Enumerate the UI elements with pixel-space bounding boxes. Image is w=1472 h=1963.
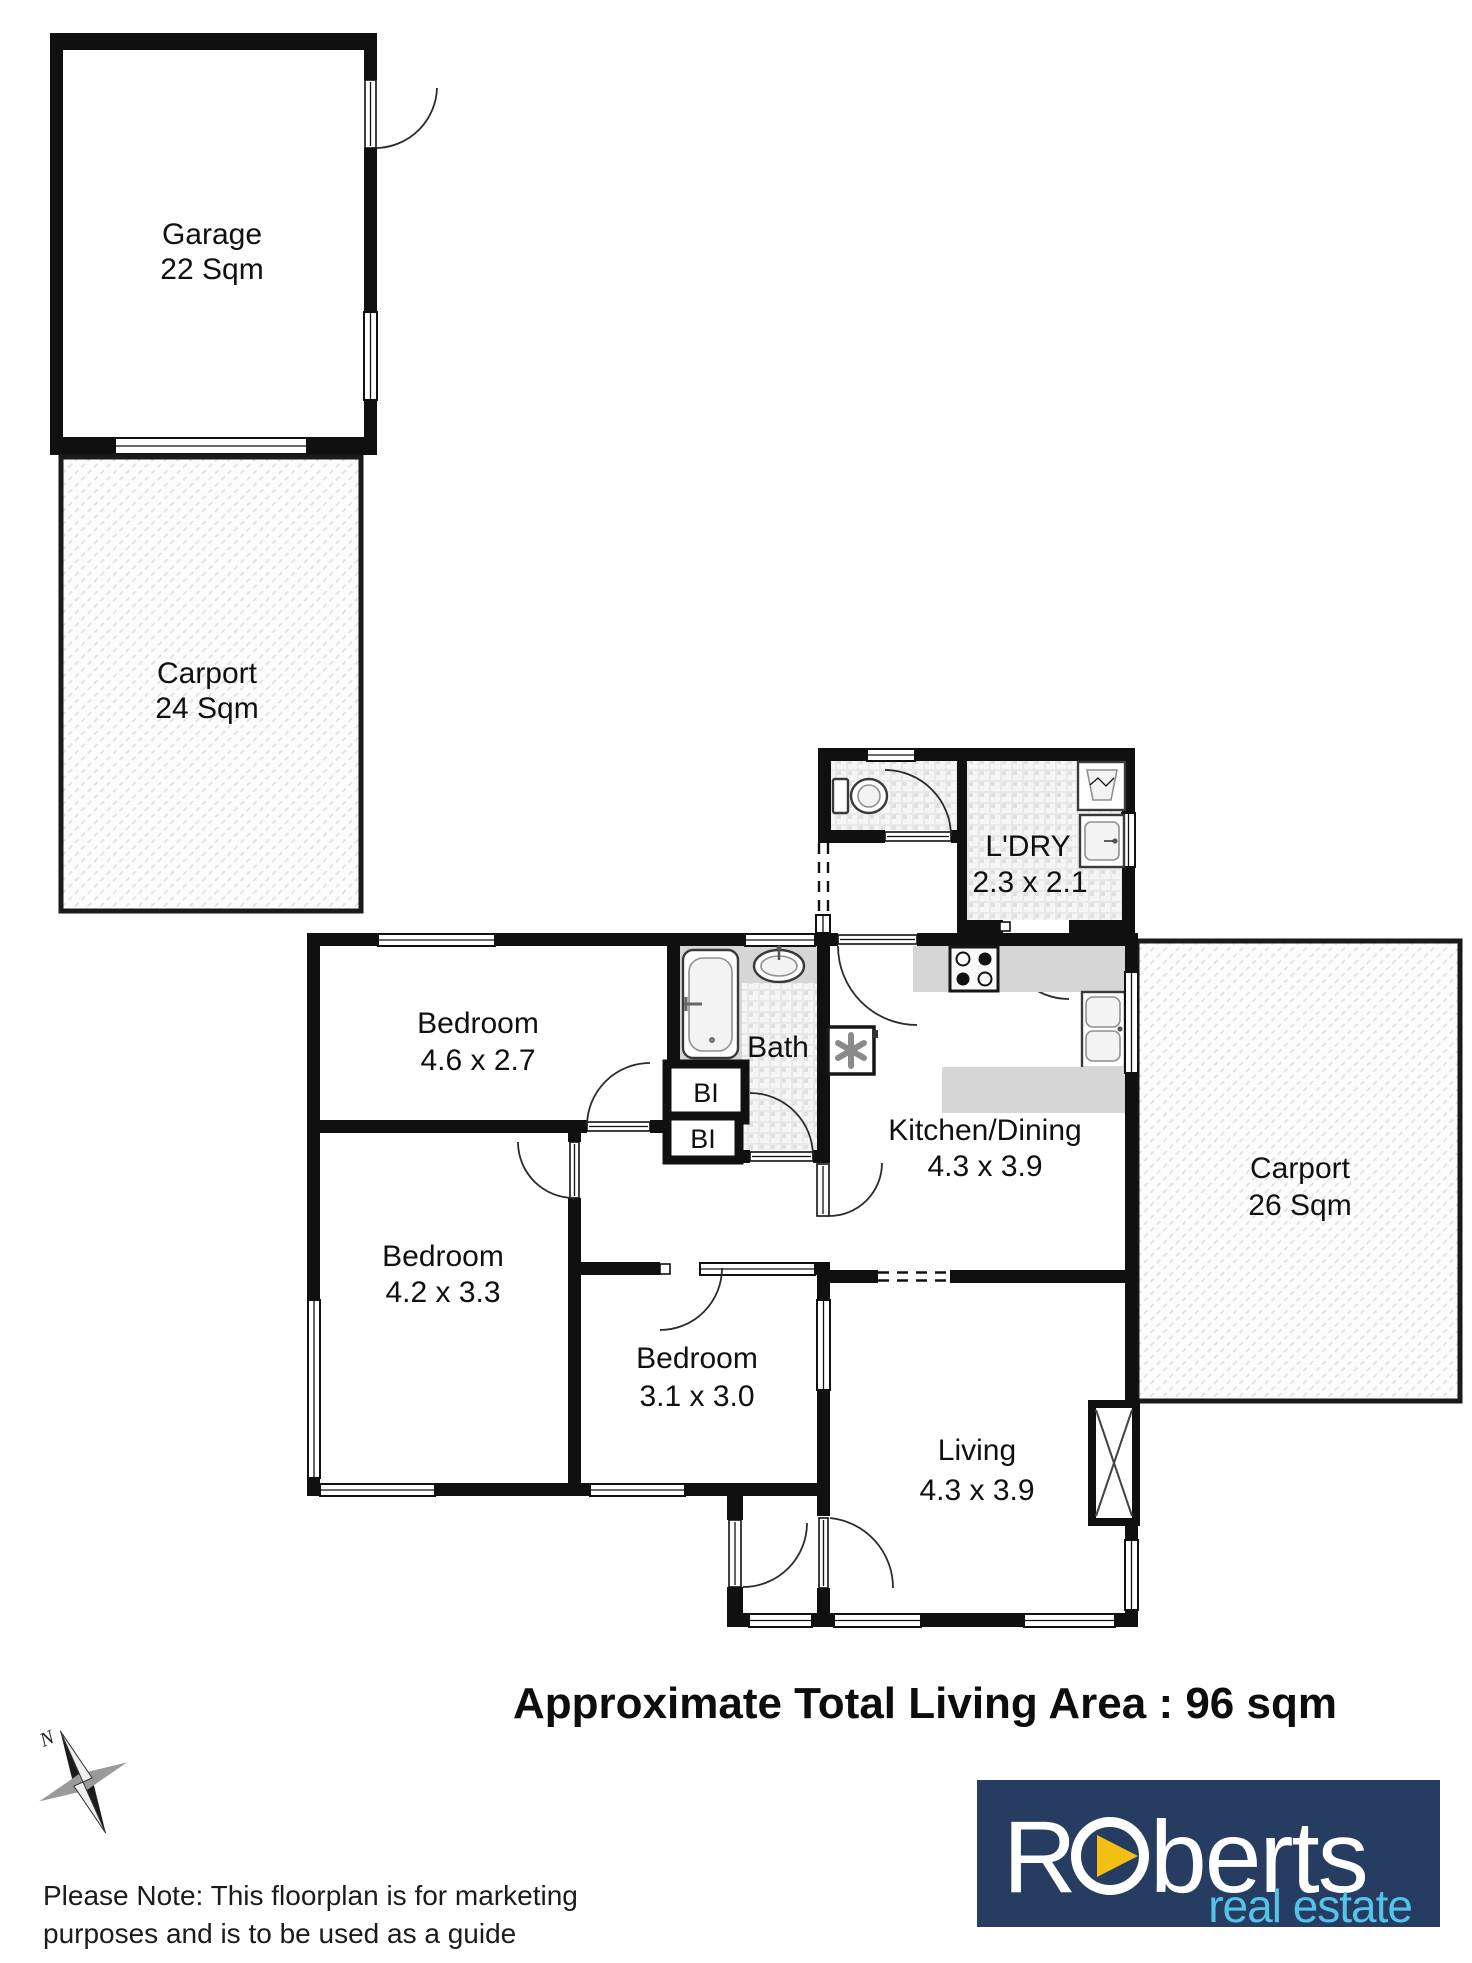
bath-window <box>745 934 815 946</box>
floorplan-drawing: Garage 22 Sqm Carport 24 Sqm Carport 26 … <box>0 0 1472 1963</box>
bedroom-2: Bedroom 4.2 x 3.3 <box>308 1142 579 1496</box>
bedroom-2-door <box>518 1142 579 1198</box>
fireplace-icon <box>1092 1404 1136 1522</box>
living-label: Living <box>938 1434 1016 1467</box>
logo-tagline: real estate <box>1208 1880 1412 1932</box>
bedroom-3-living-window <box>817 1300 830 1390</box>
bedroom-2-window-bottom <box>320 1484 435 1496</box>
carport-26: Carport 26 Sqm <box>1137 941 1460 1401</box>
porch <box>729 1518 893 1627</box>
toilet-icon <box>833 779 887 813</box>
kitchen-dining: Kitchen/Dining 4.3 x 3.9 <box>828 935 1138 1281</box>
note-line-1: Please Note: This floorplan is for marke… <box>43 1880 578 1911</box>
porch-living-door <box>819 1518 893 1588</box>
kitchen-bench <box>942 1067 1125 1113</box>
bi-1-label: BI <box>693 1078 719 1108</box>
garage-label: Garage <box>162 218 262 251</box>
bedroom-1-dims: 4.6 x 2.7 <box>420 1044 535 1077</box>
carport-24-area: 24 Sqm <box>155 692 258 725</box>
hall-open-edge <box>816 843 830 933</box>
garage-window-right <box>364 312 377 400</box>
porch-window-bottom <box>749 1614 812 1627</box>
garage-window-bottom <box>115 438 307 454</box>
kitchen-sink-icon <box>1082 992 1125 1068</box>
garage-door <box>365 80 437 148</box>
bedroom-2-window-left <box>308 1300 320 1478</box>
carport-26-label: Carport <box>1250 1152 1351 1185</box>
bi-2-label: BI <box>690 1124 716 1154</box>
carport-26-area: 26 Sqm <box>1248 1189 1351 1222</box>
logo-play-icon <box>1076 1822 1144 1890</box>
note-line-2: purposes and is to be used as a guide <box>43 1918 516 1949</box>
bedroom-3-label: Bedroom <box>636 1342 758 1375</box>
stove-icon <box>950 947 998 991</box>
laundry-dims: 2.3 x 2.1 <box>972 866 1087 899</box>
garage-area: 22 Sqm <box>160 253 263 286</box>
laundry-trough-icon <box>1080 815 1124 867</box>
living-room: Living 4.3 x 3.9 <box>834 1404 1138 1627</box>
kitchen-label: Kitchen/Dining <box>888 1114 1081 1147</box>
compass-icon: N <box>13 1703 150 1853</box>
bathroom: Bath BI BI <box>667 934 817 1161</box>
kitchen-entry-door <box>838 935 917 1025</box>
kitchen-dashed-opening <box>878 1273 950 1281</box>
wc-window <box>867 749 915 761</box>
roberts-logo: R berts real estate <box>977 1780 1440 1932</box>
heater-icon <box>828 1027 878 1074</box>
bedroom-3-dims: 3.1 x 3.0 <box>639 1380 754 1413</box>
bedroom-1-label: Bedroom <box>417 1007 539 1040</box>
carport-24: Carport 24 Sqm <box>61 457 361 911</box>
bedroom-3-window-bottom <box>590 1484 685 1496</box>
living-window-right <box>1125 1540 1138 1610</box>
bedroom-3: Bedroom 3.1 x 3.0 <box>590 1263 830 1496</box>
compass-n-label: N <box>36 1725 60 1752</box>
built-in-cupboard-2: BI <box>667 1116 739 1160</box>
logo-text-r: R <box>1003 1800 1075 1914</box>
bedroom-1-door <box>587 1063 650 1131</box>
bedroom-1: Bedroom 4.6 x 2.7 <box>378 934 650 1131</box>
living-dims: 4.3 x 3.9 <box>919 1474 1034 1507</box>
bedroom-2-label: Bedroom <box>382 1240 504 1273</box>
bedroom-2-dims: 4.2 x 3.3 <box>385 1276 500 1309</box>
bedroom-3-top-window <box>700 1263 815 1275</box>
laundry-label: L'DRY <box>985 830 1070 863</box>
garage-room: Garage 22 Sqm <box>50 33 437 455</box>
carport-24-label: Carport <box>157 657 258 690</box>
washing-machine-icon <box>1078 762 1125 810</box>
kitchen-window <box>1125 972 1138 1073</box>
floorplan-page: Garage 22 Sqm Carport 24 Sqm Carport 26 … <box>0 0 1472 1963</box>
kitchen-dims: 4.3 x 3.9 <box>927 1150 1042 1183</box>
bathtub-icon <box>683 950 738 1058</box>
total-area-text: Approximate Total Living Area : 96 sqm <box>513 1679 1337 1728</box>
living-window-bottom-left <box>834 1614 921 1627</box>
living-window-bottom-right <box>1024 1614 1115 1627</box>
porch-entry-door <box>729 1520 807 1587</box>
bath-label: Bath <box>747 1031 809 1064</box>
bedroom-1-window <box>378 934 495 946</box>
hall-kitchen-door <box>817 1163 882 1216</box>
